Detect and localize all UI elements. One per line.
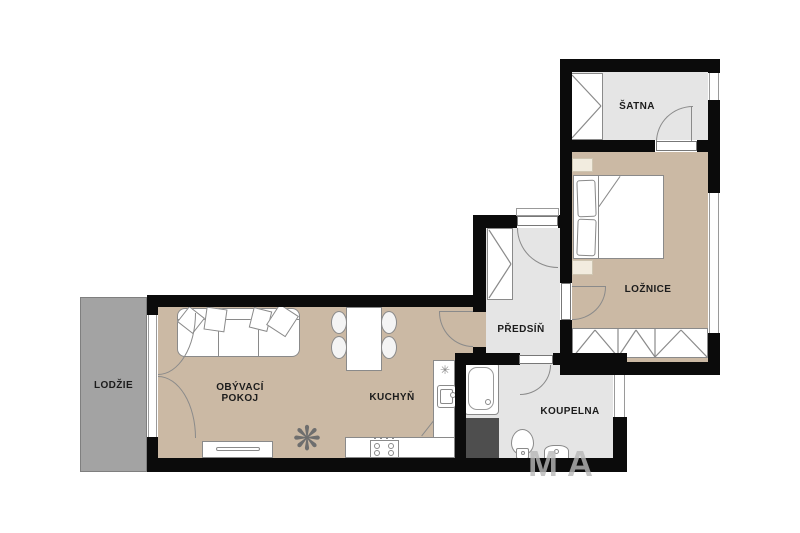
tv-cabinet-slot xyxy=(216,447,260,451)
dining-chair xyxy=(381,336,397,359)
plant-icon: ❋ xyxy=(288,420,326,458)
closet-door-leaf xyxy=(691,106,692,143)
room-label-satna: ŠATNA xyxy=(600,101,674,112)
bedroom-door-leaf xyxy=(572,286,606,287)
hallway-wardrobe xyxy=(487,228,513,300)
wall xyxy=(455,353,466,472)
stove-burner xyxy=(374,443,380,449)
nightstand xyxy=(572,260,593,275)
wardrobe-symbol xyxy=(571,74,602,139)
kitchen-counter-bottom xyxy=(345,437,455,458)
stove-knobs xyxy=(386,437,388,439)
stove-burner xyxy=(374,450,380,456)
bed-pillow xyxy=(576,219,596,257)
dining-table xyxy=(346,307,382,371)
kitchen-door-opening xyxy=(473,312,486,347)
closet-window xyxy=(709,73,719,100)
wall xyxy=(560,150,572,283)
stove-burner xyxy=(388,450,394,456)
floorplan: ❋ ✳ xyxy=(0,0,800,533)
room-label-line: POKOJ xyxy=(200,393,280,404)
toilet-flush-button xyxy=(521,451,525,455)
wall xyxy=(473,215,517,228)
stove-burner xyxy=(388,443,394,449)
wall xyxy=(473,215,486,312)
room-label-obyvaci-pokoj: OBÝVACÍ POKOJ xyxy=(200,382,280,404)
wall xyxy=(560,320,572,362)
bed-pillow xyxy=(576,180,596,218)
bathtub-drain xyxy=(485,399,491,405)
wall xyxy=(147,295,158,315)
stove-knobs xyxy=(380,437,382,439)
wall xyxy=(560,59,572,150)
wall xyxy=(147,295,486,307)
room-label-kuchyn: KUCHYŇ xyxy=(357,392,427,403)
wall xyxy=(708,100,720,193)
wall xyxy=(147,437,158,458)
closet-door-sill xyxy=(656,141,697,151)
dining-chair xyxy=(331,311,347,334)
vent-icon: ✳ xyxy=(437,362,453,378)
wall xyxy=(613,417,627,472)
room-label-koupelna: KOUPELNA xyxy=(520,406,620,417)
bedroom-door-panel xyxy=(561,283,571,320)
room-label-lodzie: LODŽIE xyxy=(80,380,147,391)
balcony-glazed-door xyxy=(148,315,157,437)
watermark: MA xyxy=(528,443,602,485)
wall xyxy=(455,353,520,365)
nightstand xyxy=(572,158,593,172)
dining-chair xyxy=(381,311,397,334)
wall xyxy=(708,59,720,73)
entrance-threshold xyxy=(516,208,559,216)
wall xyxy=(473,347,486,365)
wardrobe-symbol xyxy=(488,229,512,299)
bed-blanket-edge xyxy=(598,176,599,258)
wall xyxy=(560,59,720,72)
kitchen-door-leaf xyxy=(439,311,474,312)
bathroom-door-panel xyxy=(519,355,553,364)
room-label-line: OBÝVACÍ xyxy=(200,382,280,393)
sofa-pillow xyxy=(204,307,228,333)
room-label-predsin: PŘEDSÍŇ xyxy=(486,324,556,335)
room-label-loznice: LOŽNICE xyxy=(608,284,688,295)
entrance-door-panel xyxy=(517,216,558,226)
wall xyxy=(560,362,720,375)
stove-knobs xyxy=(392,437,394,439)
wall xyxy=(560,140,655,152)
bedroom-window xyxy=(709,193,719,333)
stove-knobs xyxy=(374,437,376,439)
installation-shaft xyxy=(466,418,499,458)
dining-chair xyxy=(331,336,347,359)
closet-wardrobe xyxy=(570,73,603,140)
